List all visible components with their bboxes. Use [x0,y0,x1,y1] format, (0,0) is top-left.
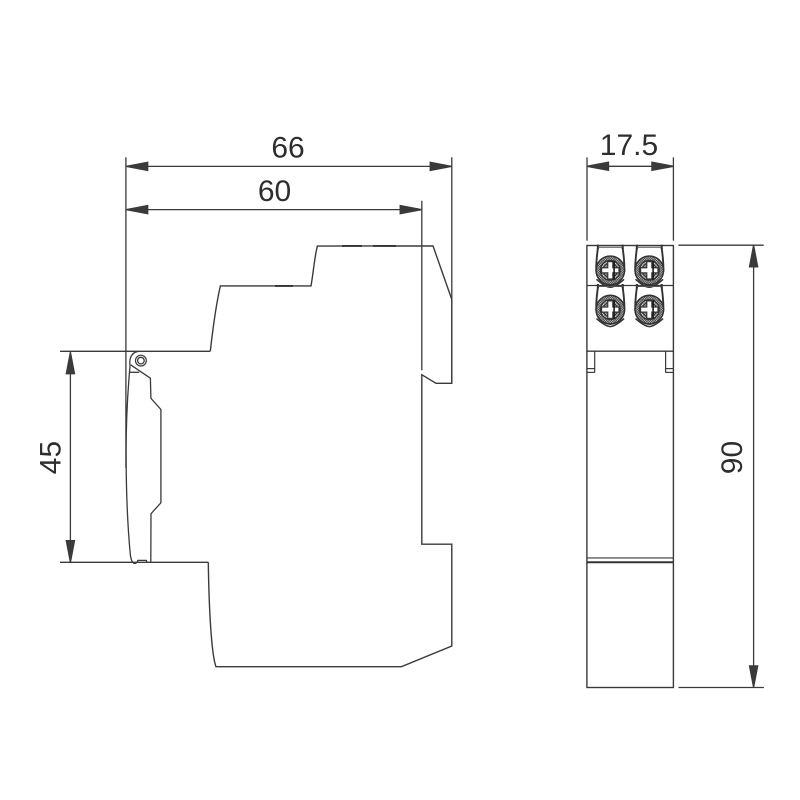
svg-text:60: 60 [258,175,291,208]
svg-text:90: 90 [716,441,749,474]
svg-text:17.5: 17.5 [600,129,658,162]
svg-text:66: 66 [271,132,304,165]
svg-text:45: 45 [35,441,68,474]
